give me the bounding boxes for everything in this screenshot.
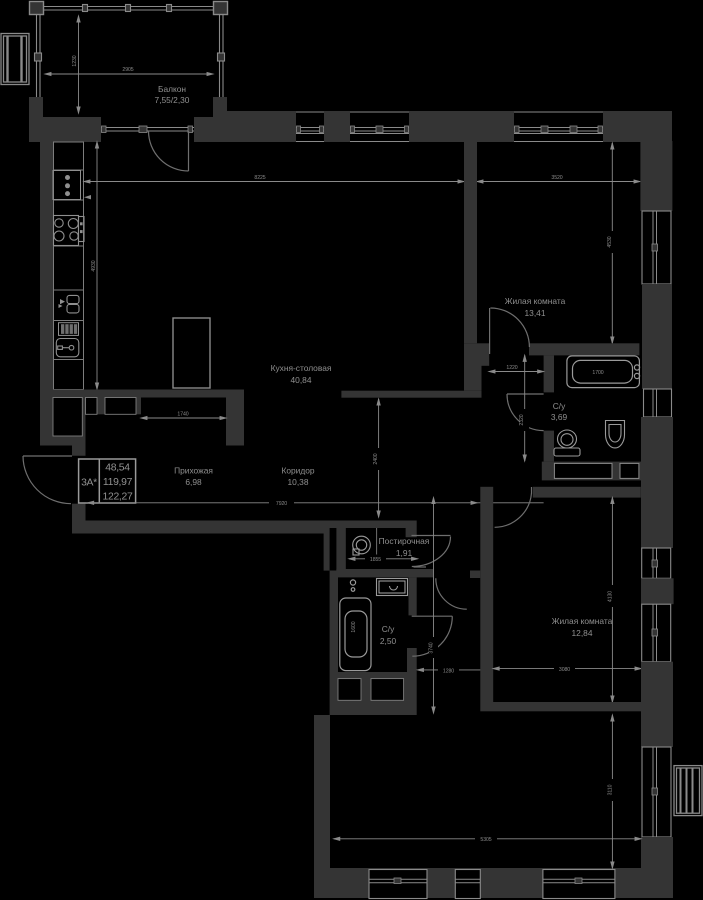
svg-text:40,84: 40,84 <box>291 375 312 385</box>
svg-text:13,41: 13,41 <box>525 308 546 318</box>
svg-text:Прихожая: Прихожая <box>174 466 213 476</box>
svg-text:Жилая комната: Жилая комната <box>552 616 613 626</box>
svg-text:4130: 4130 <box>608 591 614 602</box>
svg-text:1700: 1700 <box>592 370 603 376</box>
svg-text:1600: 1600 <box>351 621 357 632</box>
svg-text:2905: 2905 <box>122 67 133 73</box>
svg-text:2400: 2400 <box>373 453 379 464</box>
svg-text:1220: 1220 <box>506 365 517 371</box>
svg-text:3110: 3110 <box>608 784 614 795</box>
svg-text:3740: 3740 <box>429 642 435 653</box>
svg-text:С/у: С/у <box>382 624 395 634</box>
svg-text:1855: 1855 <box>370 557 381 563</box>
svg-text:3080: 3080 <box>559 667 570 673</box>
svg-text:4530: 4530 <box>607 236 613 247</box>
svg-text:4930: 4930 <box>91 260 97 271</box>
svg-text:5305: 5305 <box>480 837 491 843</box>
svg-text:10,38: 10,38 <box>288 477 309 487</box>
svg-text:119,97: 119,97 <box>103 477 133 488</box>
svg-text:1230: 1230 <box>72 55 78 66</box>
svg-text:1,91: 1,91 <box>396 548 413 558</box>
svg-text:Постирочная: Постирочная <box>379 536 430 546</box>
svg-text:7920: 7920 <box>276 501 287 507</box>
svg-text:3,69: 3,69 <box>551 412 568 422</box>
svg-text:С/у: С/у <box>553 401 566 411</box>
svg-text:3А*: 3А* <box>81 478 97 489</box>
svg-text:12,84: 12,84 <box>572 628 593 638</box>
svg-text:7,55/2,30: 7,55/2,30 <box>155 95 190 105</box>
svg-text:1740: 1740 <box>177 412 188 418</box>
svg-text:8225: 8225 <box>254 175 265 181</box>
svg-text:122,27: 122,27 <box>103 492 134 503</box>
svg-text:6,98: 6,98 <box>185 477 202 487</box>
svg-text:Жилая комната: Жилая комната <box>505 296 566 306</box>
svg-text:1280: 1280 <box>443 668 454 674</box>
svg-text:Кухня-столовая: Кухня-столовая <box>271 363 332 373</box>
svg-text:2320: 2320 <box>519 414 525 425</box>
svg-text:Коридор: Коридор <box>281 466 314 476</box>
svg-text:Балкон: Балкон <box>158 84 186 94</box>
svg-text:3520: 3520 <box>551 175 562 181</box>
svg-text:48,54: 48,54 <box>105 463 130 474</box>
svg-text:2,50: 2,50 <box>380 636 397 646</box>
